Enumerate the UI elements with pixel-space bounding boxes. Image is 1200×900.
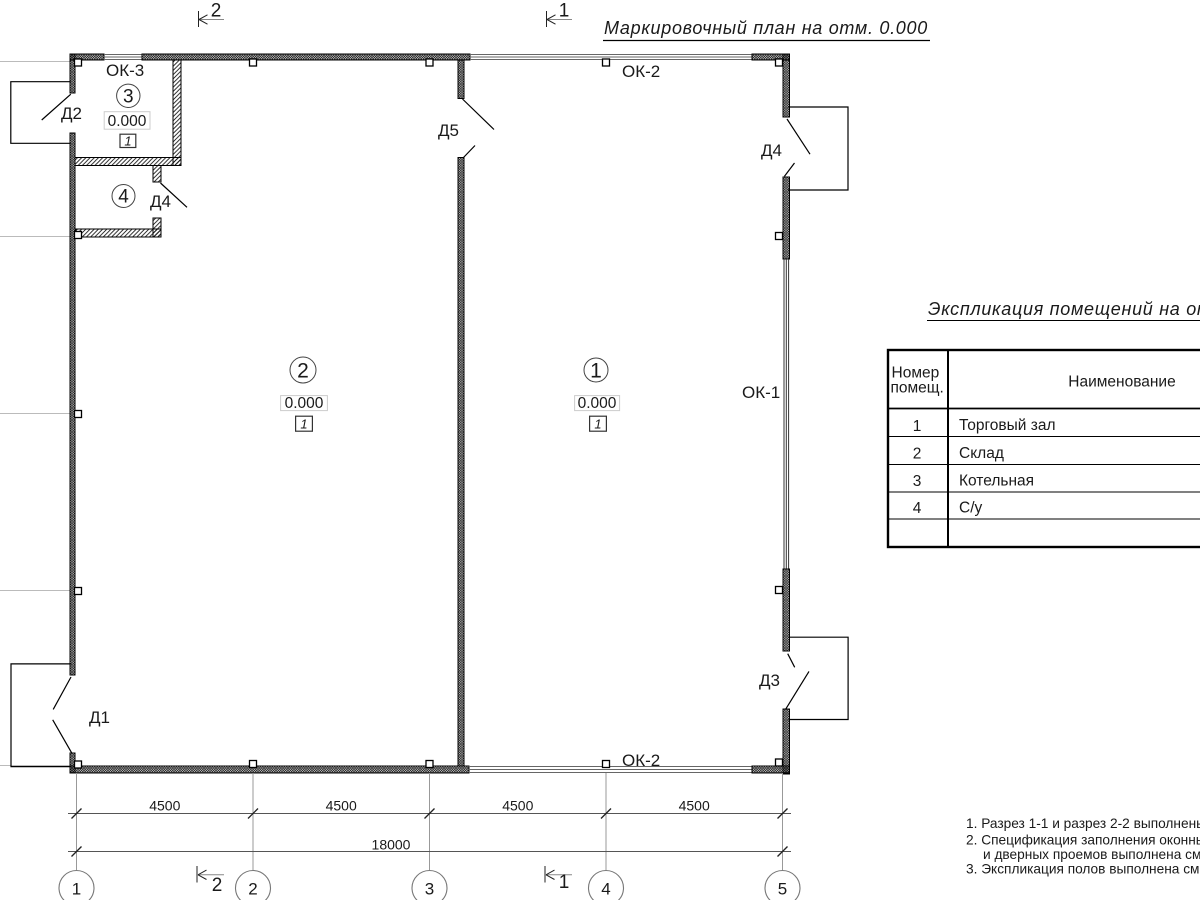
svg-text:Д4: Д4 bbox=[150, 192, 171, 211]
svg-text:0.000: 0.000 bbox=[578, 395, 617, 412]
svg-text:0.000: 0.000 bbox=[108, 113, 147, 130]
svg-text:ОК-2: ОК-2 bbox=[622, 62, 660, 81]
svg-text:1: 1 bbox=[72, 880, 81, 899]
svg-text:18000: 18000 bbox=[372, 837, 411, 853]
svg-text:4500: 4500 bbox=[326, 798, 357, 814]
svg-text:2: 2 bbox=[248, 880, 257, 899]
svg-text:Склад: Склад bbox=[959, 445, 1004, 462]
svg-text:4500: 4500 bbox=[149, 798, 180, 814]
svg-text:Котельная: Котельная bbox=[959, 473, 1034, 490]
svg-text:1. Разрез 1-1 и разрез 2-2 вып: 1. Разрез 1-1 и разрез 2-2 выполнены на … bbox=[966, 816, 1200, 831]
svg-text:ОК-1: ОК-1 bbox=[742, 383, 780, 402]
svg-text:4: 4 bbox=[118, 187, 129, 208]
svg-text:0.000: 0.000 bbox=[285, 395, 324, 412]
svg-text:1: 1 bbox=[590, 360, 602, 383]
svg-text:Д1: Д1 bbox=[89, 708, 110, 727]
svg-text:Д3: Д3 bbox=[759, 671, 780, 690]
svg-text:3. Экспликация полов выполнена: 3. Экспликация полов выполнена см. лист … bbox=[966, 862, 1200, 877]
svg-text:3: 3 bbox=[913, 473, 922, 490]
svg-text:Экспликация помещений на отм.: Экспликация помещений на отм. 0.000 bbox=[928, 299, 1200, 319]
svg-text:Д2: Д2 bbox=[61, 104, 82, 123]
svg-text:2: 2 bbox=[212, 875, 223, 896]
svg-text:2: 2 bbox=[297, 360, 309, 383]
svg-text:1: 1 bbox=[913, 418, 922, 435]
svg-text:1: 1 bbox=[559, 872, 570, 893]
svg-text:Наименование: Наименование bbox=[1068, 374, 1175, 391]
svg-text:ОК-2: ОК-2 bbox=[622, 751, 660, 770]
svg-text:5: 5 bbox=[778, 880, 787, 899]
svg-text:и дверных проемов выполнена см: и дверных проемов выполнена см. лист 6 bbox=[983, 847, 1200, 862]
svg-text:2: 2 bbox=[913, 446, 922, 463]
svg-text:помещ.: помещ. bbox=[891, 380, 944, 397]
svg-text:Маркировочный план на отм. 0.0: Маркировочный план на отм. 0.000 bbox=[604, 18, 928, 38]
svg-text:4: 4 bbox=[913, 500, 922, 517]
svg-text:1: 1 bbox=[300, 417, 307, 432]
svg-text:3: 3 bbox=[123, 87, 134, 108]
svg-text:4500: 4500 bbox=[502, 798, 533, 814]
svg-text:1: 1 bbox=[594, 417, 601, 432]
svg-text:4: 4 bbox=[601, 880, 610, 899]
svg-text:4500: 4500 bbox=[679, 798, 710, 814]
svg-text:Д4: Д4 bbox=[761, 141, 782, 160]
svg-text:ОК-3: ОК-3 bbox=[106, 61, 144, 80]
svg-text:2: 2 bbox=[211, 1, 222, 22]
svg-text:С/у: С/у bbox=[959, 500, 983, 517]
svg-text:2. Спецификация заполнения око: 2. Спецификация заполнения оконных проем… bbox=[966, 833, 1200, 848]
svg-text:3: 3 bbox=[425, 880, 434, 899]
svg-text:1: 1 bbox=[124, 134, 131, 149]
svg-text:Д5: Д5 bbox=[438, 121, 459, 140]
svg-text:1: 1 bbox=[559, 1, 570, 22]
svg-text:Торговый зал: Торговый зал bbox=[959, 417, 1056, 434]
